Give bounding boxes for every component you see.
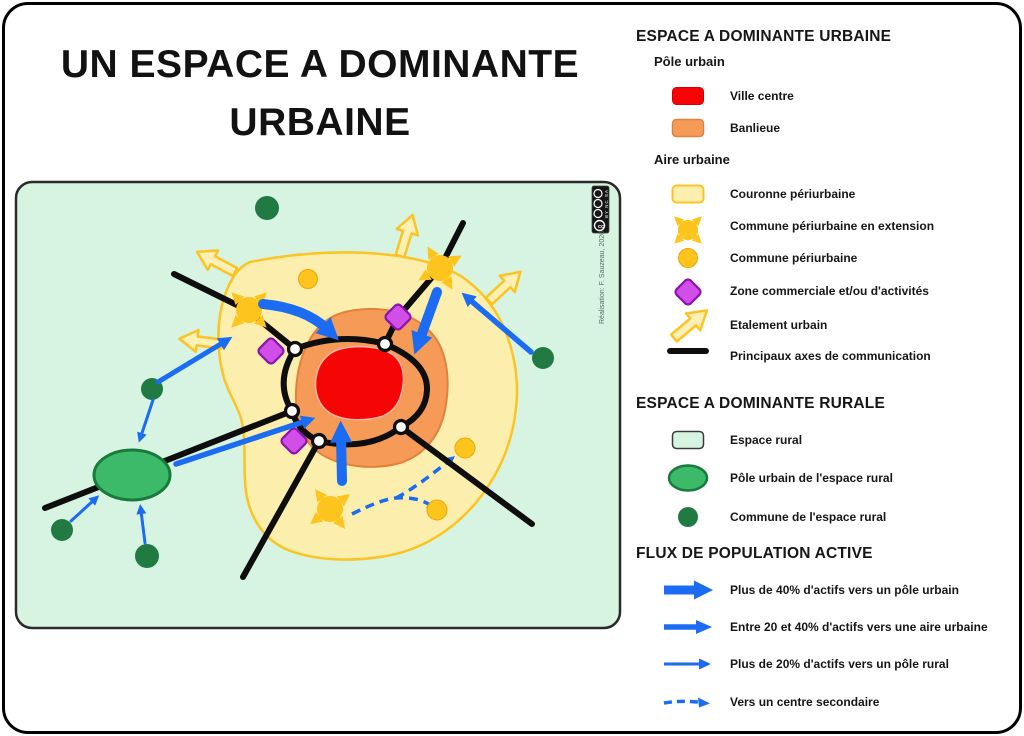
legend-row-flux-20: Plus de 20% d'actifs vers un pôle rural xyxy=(630,653,1022,675)
flux-thin-arrow-icon xyxy=(658,653,718,675)
commune-rurale-icon xyxy=(658,505,718,529)
road-node xyxy=(379,338,392,351)
commune-rurale-icon xyxy=(135,544,159,568)
infographic-page: UN ESPACE A DOMINANTE URBAINE xyxy=(0,0,1024,736)
commune-periurbaine-icon xyxy=(299,270,318,289)
legend-row-etalement: Etalement urbain xyxy=(630,307,1022,343)
legend-label: Plus de 40% d'actifs vers un pôle urbain xyxy=(730,583,959,597)
page-title-line1: UN ESPACE A DOMINANTE xyxy=(22,36,618,94)
etalement-urbain-icon xyxy=(658,307,718,345)
legend-row-flux-40: Plus de 40% d'actifs vers un pôle urbain xyxy=(630,579,1022,601)
legend-label: Espace rural xyxy=(730,433,802,447)
flux-thick-arrow-icon xyxy=(658,579,718,601)
page-title-line2: URBAINE xyxy=(22,94,618,152)
road-node xyxy=(286,405,299,418)
legend-row-flux-20-40: Entre 20 et 40% d'actifs vers une aire u… xyxy=(630,616,1022,638)
legend-label: Pôle urbain de l'espace rural xyxy=(730,471,893,485)
ville-centre-area xyxy=(316,347,404,420)
couronne-swatch xyxy=(658,184,718,204)
cc-license-text: BY NC SA xyxy=(604,189,609,218)
legend-pole-urbain-subtitle: Pôle urbain xyxy=(654,54,725,69)
legend-label: Banlieue xyxy=(730,121,780,135)
legend-label: Plus de 20% d'actifs vers un pôle rural xyxy=(730,657,949,671)
commune-periurbaine-icon xyxy=(427,500,447,520)
flux-arrow-thick xyxy=(341,437,342,481)
legend-aire-urbaine-subtitle: Aire urbaine xyxy=(654,152,730,167)
legend-row-ville-centre: Ville centre xyxy=(630,86,1022,106)
commune-rurale-icon xyxy=(255,196,279,220)
legend-label: Vers un centre secondaire xyxy=(730,695,879,709)
legend-row-flux-secondaire: Vers un centre secondaire xyxy=(630,691,1022,713)
attribution-text: Réalisation: F. Sauzeau, 2026 xyxy=(599,231,606,324)
page-title: UN ESPACE A DOMINANTE URBAINE xyxy=(22,36,618,152)
legend-row-commune-extension: Commune périurbaine en extension xyxy=(630,210,1022,242)
road-node xyxy=(395,421,408,434)
legend-panel: ESPACE A DOMINANTE URBAINE Pôle urbain V… xyxy=(630,0,1022,736)
commune-rurale-icon xyxy=(51,519,73,541)
commune-periurbaine-icon xyxy=(658,247,718,269)
zone-commerciale-icon xyxy=(658,277,718,307)
flux-medium-arrow-icon xyxy=(658,616,718,638)
commune-extension-icon xyxy=(658,210,718,250)
legend-label: Entre 20 et 40% d'actifs vers une aire u… xyxy=(730,620,988,634)
legend-row-couronne: Couronne périurbaine xyxy=(630,184,1022,204)
legend-label: Couronne périurbaine xyxy=(730,187,855,201)
commune-rurale-icon xyxy=(532,347,554,369)
legend-label: Principaux axes de communication xyxy=(730,349,931,363)
flux-dashed-arrow-icon xyxy=(658,691,718,713)
commune-periurbaine-icon xyxy=(455,438,475,458)
pole-rural-ellipse xyxy=(94,450,170,500)
legend-row-espace-rural: Espace rural xyxy=(630,430,1022,450)
pole-rural-icon xyxy=(658,463,718,493)
legend-row-axes: Principaux axes de communication xyxy=(630,346,1022,366)
road-node xyxy=(289,343,302,356)
cc-license-badge: cc BY NC SA xyxy=(592,186,609,233)
legend-urban-title: ESPACE A DOMINANTE URBAINE xyxy=(636,28,891,46)
legend-row-commune-rurale: Commune de l'espace rural xyxy=(630,505,1022,529)
legend-flux-title: FLUX DE POPULATION ACTIVE xyxy=(636,545,873,563)
legend-label: Commune périurbaine xyxy=(730,251,857,265)
legend-row-zone-commerciale: Zone commerciale et/ou d'activités xyxy=(630,277,1022,305)
banlieue-swatch xyxy=(658,118,718,138)
svg-text:cc: cc xyxy=(598,224,604,230)
legend-label: Commune périurbaine en extension xyxy=(730,219,934,233)
legend-row-commune-periurbaine: Commune périurbaine xyxy=(630,247,1022,269)
espace-rural-swatch xyxy=(658,430,718,450)
road-node xyxy=(313,435,326,448)
legend-rural-title: ESPACE A DOMINANTE RURALE xyxy=(636,395,885,413)
legend-label: Commune de l'espace rural xyxy=(730,510,886,524)
legend-row-banlieue: Banlieue xyxy=(630,118,1022,138)
ville-centre-swatch xyxy=(658,86,718,106)
legend-label: Zone commerciale et/ou d'activités xyxy=(730,284,929,298)
legend-label: Ville centre xyxy=(730,89,794,103)
axes-communication-icon xyxy=(658,346,718,356)
legend-label: Etalement urbain xyxy=(730,318,827,332)
legend-row-pole-rural: Pôle urbain de l'espace rural xyxy=(630,463,1022,493)
schematic-map: cc BY NC SA Réalisation: F. Sauzeau, 202… xyxy=(14,180,624,632)
